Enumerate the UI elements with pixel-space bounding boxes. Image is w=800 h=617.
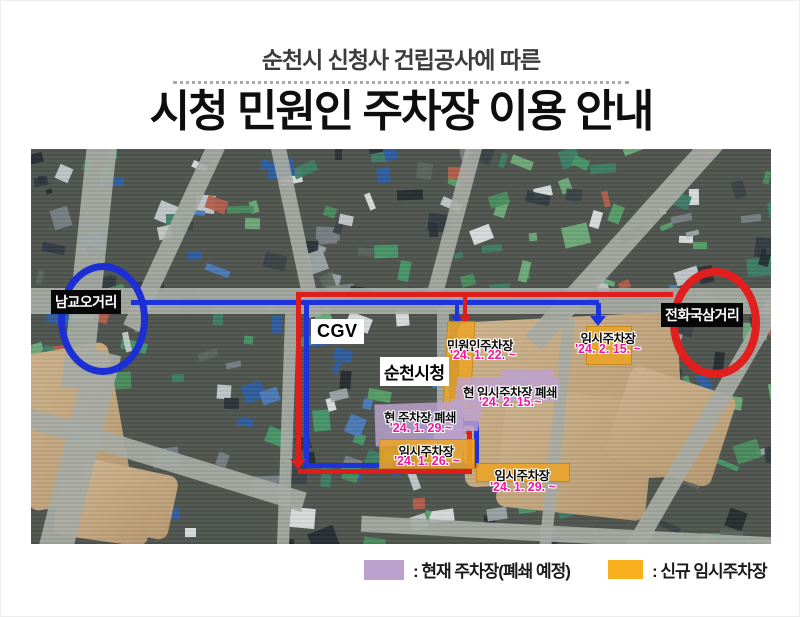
legend-current-parking-label: : 현재 주차장(폐쇄 예정) [413,557,570,582]
namgyo-intersection-ring [58,263,148,375]
legend-new-temp-parking: : 신규 임시주차장 [608,557,767,582]
route-red-left-vertical [296,292,301,459]
parking-label-date: '24. 1. 29. ~ [479,480,567,494]
route-red-bottom-line [298,469,472,474]
route-blue-branch-vertical [304,303,309,465]
legend-current-parking: : 현재 주차장(폐쇄 예정) [364,557,570,582]
poster-subtitle: 순천시 신청사 건립공사에 따른 [1,41,800,75]
route-red-entry-arrow-shaft [463,297,467,316]
parking-label-date: '24. 1. 22. ~ [450,348,516,362]
route-red-main-line [298,292,673,297]
jeonhwaguk-intersection-label: 전화국삼거리 [661,303,743,327]
parking-label-date: '24. 1. 29.~ [389,421,453,435]
route-blue-main-line [131,300,599,305]
header: 순천시 신청사 건립공사에 따른 시청 민원인 주차장 이용 안내 [1,1,800,134]
parking-label-date: '24. 2. 15.~ [479,395,541,409]
parking-label-date: '24. 1. 26. ~ [383,454,471,468]
cgv-place-label: CGV [311,319,364,344]
parking-label-date: '24. 2. 15. ~ [572,342,644,356]
parking-notice-poster: { "poster": { "subtitle": "순천시 신청사 건립공사에… [0,0,800,617]
legend-new-temp-parking-swatch [608,560,643,579]
namgyo-intersection-label: 남교오거리 [51,290,121,314]
map-annotations: 남교오거리 전화국삼거리 CGV 순천시청 민원인주차장 '24. 1. 22.… [31,149,771,544]
route-blue-ne-arrow-shaft [596,303,601,316]
dotted-divider [173,80,629,84]
route-blue-ne-arrowhead-icon [590,316,606,326]
satellite-map: 남교오거리 전화국삼거리 CGV 순천시청 민원인주차장 '24. 1. 22.… [31,149,771,544]
route-blue-entry-arrow-shaft [455,305,459,316]
legend-new-temp-parking-label: : 신규 임시주차장 [652,557,767,582]
legend-current-parking-swatch [364,560,404,580]
poster-title: 시청 민원인 주차장 이용 안내 [1,90,800,134]
cityhall-place-label: 순천시청 [380,357,449,386]
